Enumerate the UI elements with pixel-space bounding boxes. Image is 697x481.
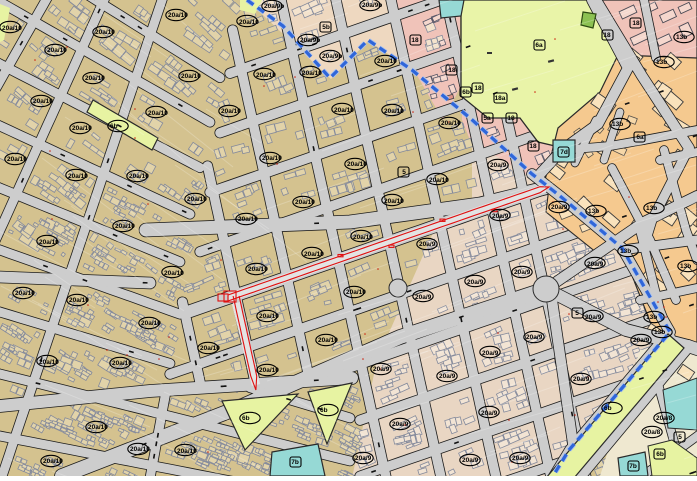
svg-text:20a/9: 20a/9 bbox=[481, 410, 498, 417]
svg-text:20a/9: 20a/9 bbox=[587, 261, 604, 268]
svg-text:20a/10: 20a/10 bbox=[39, 359, 59, 366]
svg-text:5: 5 bbox=[575, 310, 579, 317]
svg-text:20a/10: 20a/10 bbox=[239, 19, 259, 26]
svg-text:20a/10: 20a/10 bbox=[259, 367, 279, 374]
svg-text:20a/10: 20a/10 bbox=[15, 290, 35, 297]
svg-text:20a/10: 20a/10 bbox=[221, 108, 241, 115]
svg-text:7d: 7d bbox=[560, 149, 568, 156]
svg-text:5: 5 bbox=[402, 169, 406, 176]
svg-text:13b: 13b bbox=[620, 248, 631, 255]
svg-text:7b: 7b bbox=[629, 463, 637, 470]
svg-text:20a/9: 20a/9 bbox=[551, 204, 568, 211]
svg-text:18: 18 bbox=[603, 32, 611, 39]
svg-text:20a/9: 20a/9 bbox=[573, 376, 590, 383]
svg-text:5a: 5a bbox=[483, 115, 491, 122]
svg-text:20a/10: 20a/10 bbox=[72, 125, 92, 132]
svg-text:20a/9b: 20a/9b bbox=[322, 53, 342, 60]
svg-text:20a/10: 20a/10 bbox=[318, 337, 338, 344]
svg-text:6b: 6b bbox=[242, 415, 250, 422]
svg-text:20a/10: 20a/10 bbox=[69, 297, 89, 304]
svg-text:20a/10: 20a/10 bbox=[347, 161, 367, 168]
svg-text:20a/10: 20a/10 bbox=[238, 216, 258, 223]
svg-text:20a/9: 20a/9 bbox=[373, 366, 390, 373]
svg-text:20a/9: 20a/9 bbox=[512, 455, 529, 462]
svg-text:20a/9: 20a/9 bbox=[514, 269, 531, 276]
svg-text:13b: 13b bbox=[680, 263, 691, 270]
svg-text:20a/10: 20a/10 bbox=[68, 173, 88, 180]
svg-text:20a/10: 20a/10 bbox=[39, 239, 59, 246]
svg-text:20a/10: 20a/10 bbox=[384, 108, 404, 115]
svg-text:20a/9b: 20a/9b bbox=[300, 37, 320, 44]
svg-text:18: 18 bbox=[448, 67, 456, 74]
svg-text:20a/10: 20a/10 bbox=[115, 223, 135, 230]
svg-text:20a/8: 20a/8 bbox=[656, 415, 673, 422]
svg-text:6a: 6a bbox=[636, 134, 644, 141]
svg-text:20a/10: 20a/10 bbox=[295, 199, 315, 206]
svg-text:20a/10: 20a/10 bbox=[187, 196, 207, 203]
svg-text:18a: 18a bbox=[495, 95, 506, 102]
svg-text:18: 18 bbox=[632, 20, 640, 27]
svg-text:13b: 13b bbox=[656, 59, 667, 66]
svg-text:20a/10: 20a/10 bbox=[177, 448, 197, 455]
svg-text:13b: 13b bbox=[612, 121, 623, 128]
svg-text:18: 18 bbox=[411, 37, 419, 44]
svg-text:20a/9: 20a/9 bbox=[482, 350, 499, 357]
svg-text:20a/10: 20a/10 bbox=[168, 12, 188, 19]
svg-text:20a/9: 20a/9 bbox=[415, 294, 432, 301]
svg-text:20a/10: 20a/10 bbox=[181, 73, 201, 80]
svg-text:20a/9: 20a/9 bbox=[392, 421, 409, 428]
svg-text:6b: 6b bbox=[604, 405, 612, 412]
svg-text:5: 5 bbox=[678, 434, 682, 441]
svg-text:20a/10: 20a/10 bbox=[88, 424, 108, 431]
svg-text:20a/10: 20a/10 bbox=[33, 98, 53, 105]
svg-text:20a/9: 20a/9 bbox=[439, 373, 456, 380]
svg-text:6a: 6a bbox=[535, 42, 543, 49]
svg-text:6b: 6b bbox=[110, 123, 118, 130]
svg-text:20a/10: 20a/10 bbox=[148, 110, 168, 117]
svg-text:7b: 7b bbox=[291, 459, 299, 466]
svg-text:20a/10: 20a/10 bbox=[346, 289, 366, 296]
svg-text:20a/10: 20a/10 bbox=[164, 270, 184, 277]
svg-text:6b: 6b bbox=[320, 407, 328, 414]
svg-text:20a/10: 20a/10 bbox=[141, 320, 161, 327]
svg-text:20a/9: 20a/9 bbox=[526, 334, 543, 341]
svg-text:20a/10: 20a/10 bbox=[85, 75, 105, 82]
svg-text:20a/10: 20a/10 bbox=[43, 458, 63, 465]
svg-text:20a/10: 20a/10 bbox=[200, 345, 220, 352]
svg-text:20a/9: 20a/9 bbox=[633, 337, 650, 344]
svg-text:18: 18 bbox=[529, 143, 537, 150]
svg-text:20a/10: 20a/10 bbox=[259, 313, 279, 320]
svg-text:20a/9b: 20a/9b bbox=[362, 2, 382, 9]
svg-text:20a/10: 20a/10 bbox=[7, 156, 27, 163]
svg-text:13b: 13b bbox=[654, 329, 665, 336]
svg-text:20a/10: 20a/10 bbox=[256, 72, 276, 79]
svg-text:20a/10: 20a/10 bbox=[129, 173, 149, 180]
svg-text:20a/10: 20a/10 bbox=[429, 177, 449, 184]
svg-text:20a/9: 20a/9 bbox=[490, 162, 507, 169]
svg-text:20a/10: 20a/10 bbox=[384, 198, 404, 205]
svg-text:20a/9b: 20a/9b bbox=[264, 3, 284, 10]
svg-text:20a/10: 20a/10 bbox=[441, 120, 461, 127]
svg-text:20a/10: 20a/10 bbox=[262, 155, 282, 162]
svg-text:20a/10: 20a/10 bbox=[377, 58, 397, 65]
svg-text:20a/9: 20a/9 bbox=[419, 241, 436, 248]
svg-text:20a/10: 20a/10 bbox=[334, 107, 354, 114]
svg-text:18: 18 bbox=[507, 115, 515, 122]
svg-text:20a/10: 20a/10 bbox=[304, 251, 324, 258]
svg-text:13b: 13b bbox=[646, 314, 657, 321]
svg-text:20a/10: 20a/10 bbox=[112, 360, 132, 367]
svg-text:13b: 13b bbox=[588, 208, 599, 215]
svg-text:20a/10: 20a/10 bbox=[47, 47, 67, 54]
svg-text:5b: 5b bbox=[322, 24, 330, 31]
svg-text:6b: 6b bbox=[462, 89, 470, 96]
svg-text:20a/9: 20a/9 bbox=[355, 455, 372, 462]
svg-text:20a/10: 20a/10 bbox=[353, 234, 373, 241]
svg-text:6b: 6b bbox=[656, 451, 664, 458]
svg-text:18: 18 bbox=[474, 85, 482, 92]
svg-text:20a/9: 20a/9 bbox=[585, 314, 602, 321]
svg-text:20a/9: 20a/9 bbox=[492, 213, 509, 220]
svg-text:20a/8: 20a/8 bbox=[644, 429, 661, 436]
svg-text:13b: 13b bbox=[646, 205, 657, 212]
svg-text:20a/10: 20a/10 bbox=[2, 25, 22, 32]
svg-text:20a/10: 20a/10 bbox=[248, 266, 268, 273]
svg-text:20a/9: 20a/9 bbox=[462, 457, 479, 464]
svg-text:20a/10: 20a/10 bbox=[130, 446, 150, 453]
svg-text:20a/9: 20a/9 bbox=[467, 279, 484, 286]
svg-text:20a/10: 20a/10 bbox=[302, 70, 322, 77]
svg-text:13b: 13b bbox=[676, 34, 687, 41]
svg-text:20a/10: 20a/10 bbox=[95, 29, 115, 36]
